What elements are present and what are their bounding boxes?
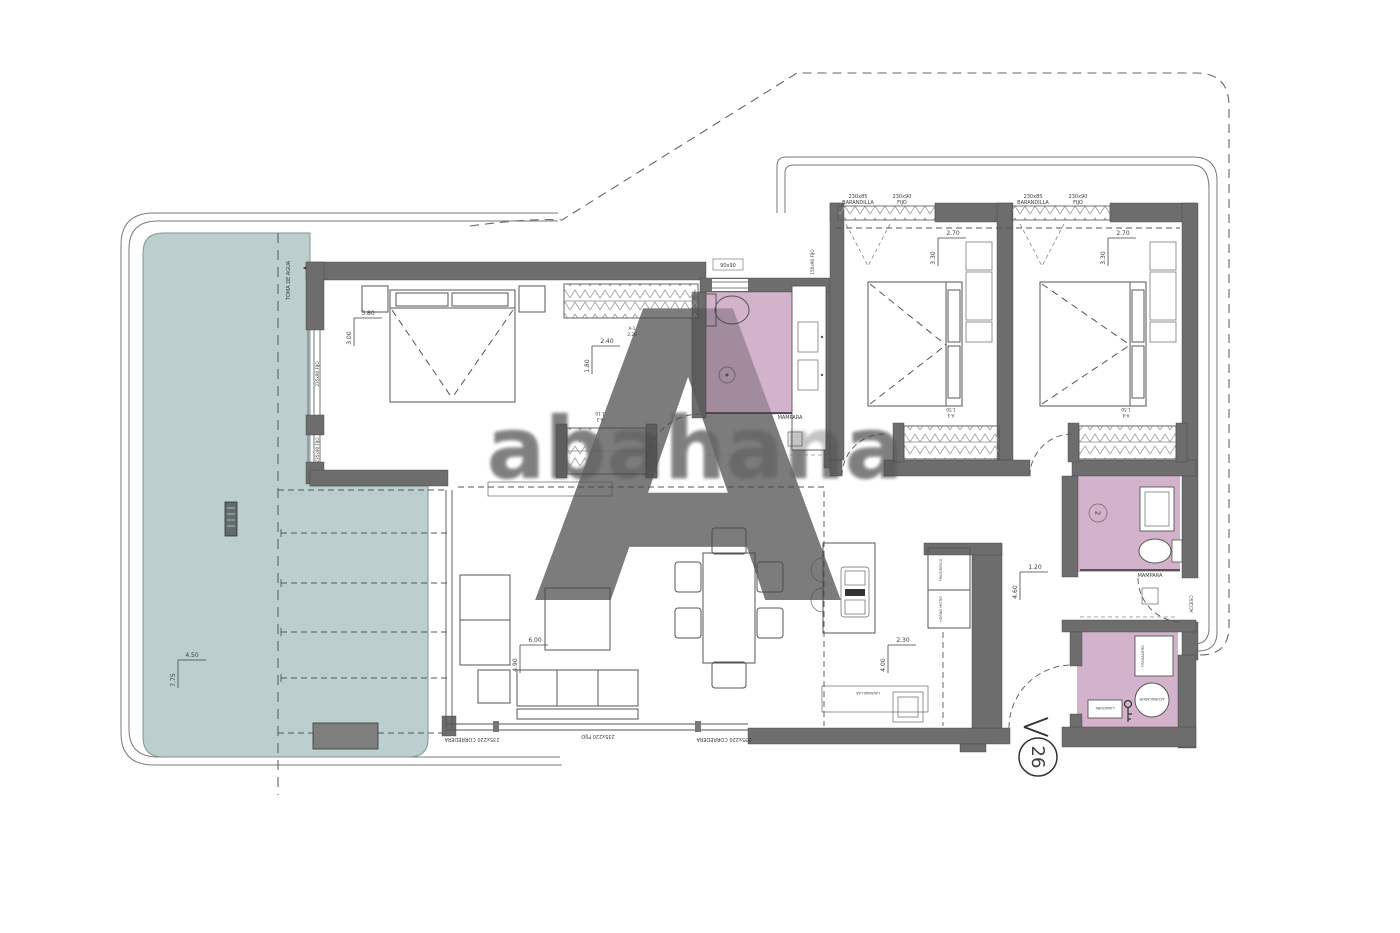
hob-burner-2: [845, 600, 865, 614]
closet-a4: [1079, 426, 1176, 459]
closet-a3-code: A-3: [947, 413, 954, 418]
bed3-window: [1012, 206, 1110, 220]
wall-master-left-2: [306, 415, 324, 435]
bed3-shelf-1: [1150, 242, 1176, 270]
glazing-center-label: 235x220 FIJO: [581, 733, 614, 739]
glazing-mullion-1: [493, 721, 499, 732]
hob-burner-1: [845, 571, 865, 585]
bed3-dim-w: 2.70: [1116, 230, 1130, 237]
hall-dim-l: 4.60: [1012, 585, 1019, 599]
bed2-window-swing: [846, 224, 890, 266]
sofa-pouf: [478, 670, 510, 703]
wall-glazing-corner: [442, 716, 456, 736]
wall-master-left-1: [306, 262, 324, 330]
floor-plan-canvas: A abahana TOMA DE AGUA 4.50 7.75: [0, 0, 1400, 933]
bed2-shelf-2: [966, 272, 992, 320]
nightstand-left: [362, 286, 388, 312]
bed3-fixed-label: FIJO: [1073, 200, 1083, 206]
closet-a4-len: 1.50: [1121, 407, 1131, 412]
laundry-boiler-label: ACUMULADOR: [1139, 697, 1165, 701]
living-glazing-left: [446, 490, 452, 728]
bed2-shelf-1: [966, 242, 992, 270]
glazing-mullion-2: [695, 721, 701, 732]
wall-hall-3: [1072, 460, 1196, 476]
bed3-shelf-3: [1150, 322, 1176, 342]
pool-step-block: [313, 723, 378, 749]
door-arc-laundry: [1009, 665, 1072, 728]
bed3-window-swing: [1020, 224, 1064, 266]
wall-kitchen-top: [924, 543, 1002, 555]
kitchen-unit2-label: HORNO MICRO: [939, 596, 943, 622]
master-dim-w: 3.80: [361, 310, 375, 317]
bed2-fixed-label: FIJO: [897, 200, 907, 206]
wall-laundry-left-1: [1070, 632, 1082, 666]
plot-number-marker: 26: [1019, 718, 1057, 776]
living-dim-d: 4.90: [512, 658, 519, 672]
bath2-screen-label: MAMPARA: [1138, 573, 1163, 579]
kitchen-tall-unit-2: [928, 590, 970, 628]
door-arc-entry: [1138, 578, 1182, 622]
kitchen-sink-inner: [898, 697, 918, 717]
laundry-washer-label: LAVADORA: [1095, 706, 1115, 710]
door-arc-bed3: [1030, 434, 1072, 476]
laundry-sink-label: FREGADERO: [1141, 645, 1145, 667]
bed2-dim-d: 3.30: [930, 251, 937, 265]
wall-kitchen-column: [972, 545, 1002, 728]
bed2-dim-w: 2.70: [946, 230, 960, 237]
closet-a3: [904, 426, 999, 459]
glazing-left-label: 235x220 CORREDERA: [444, 736, 499, 742]
wall-laundry-bottom: [1062, 727, 1196, 747]
toilet2-tank: [1172, 540, 1182, 562]
wall-living-bottom: [748, 728, 1010, 744]
closet-a3-len: 1.50: [946, 407, 956, 412]
entry-label: ACCESO: [1189, 595, 1194, 613]
water-inlet-label: TOMA DE AGUA: [286, 260, 292, 301]
wall-bed-divider: [997, 203, 1013, 460]
closet-a4-endwall-r: [1176, 423, 1187, 462]
bed2: [868, 242, 992, 406]
dim-kitchen: 2.30 4.00: [880, 637, 916, 673]
master-bed: [362, 286, 545, 402]
glazing-right-label: 235x220 CORREDERA: [696, 736, 751, 742]
kitchen-dim-w: 2.30: [896, 637, 910, 644]
bed3: [1040, 242, 1176, 406]
kitchen-sink-square: [893, 692, 923, 722]
bed3-dim-d: 3.30: [1100, 251, 1107, 265]
bed3-rail-label: BARANDILLA: [1017, 200, 1049, 206]
pool-dim-length: 7.75: [170, 673, 177, 687]
master-window2-label: 235x90 FIJO: [315, 437, 320, 463]
toilet2-bowl: [1139, 539, 1171, 563]
kitchen-unit1-label: FRIGORIFICO: [939, 558, 943, 581]
pool-equipment-box: [225, 502, 237, 536]
wall-hall-2: [884, 460, 1030, 476]
wall-master-bottom: [310, 470, 448, 486]
sofa-backrest: [517, 709, 638, 719]
wall-bottom-tab: [960, 744, 986, 752]
dim-bed3: 2.70 3.30: [1100, 230, 1136, 266]
hob-bar: [845, 589, 865, 596]
closet-a4-code: A-4: [1122, 413, 1129, 418]
hall-dim-w: 1.20: [1028, 564, 1042, 571]
master-window1-label: 235x90 FIJO: [315, 361, 320, 387]
kitchen-dim-d: 4.00: [880, 658, 887, 672]
kitchen-appliance-label: LAVAVAJILLAS: [855, 691, 880, 695]
dim-master: 3.80 3.00: [346, 310, 382, 346]
watermark-word-over: abahana: [487, 399, 903, 499]
watermark-over: A abahana: [487, 230, 903, 695]
wall-right-outer-upper: [1182, 203, 1198, 578]
pool-dim-width: 4.50: [185, 652, 199, 659]
bed2-window: [838, 206, 935, 220]
wall-bath2-left: [1062, 476, 1078, 577]
plot-arrow-icon: [1024, 718, 1048, 736]
dim-bed2: 2.70 3.30: [930, 230, 966, 266]
bed3-shelf-2: [1150, 272, 1176, 320]
floor-plan-drawing: A abahana TOMA DE AGUA 4.50 7.75: [0, 0, 1400, 933]
dim-hall: 1.20 4.60: [1012, 564, 1048, 600]
master-dim-d: 3.00: [346, 331, 353, 345]
living-glazing-bottom: [446, 724, 748, 730]
closet-a4-endwall-l: [1068, 423, 1079, 462]
bed2-rail-label: BARANDILLA: [842, 200, 874, 206]
plot-number-text: 26: [1027, 746, 1048, 769]
bed2-shelf-3: [966, 322, 992, 342]
pool-area: TOMA DE AGUA 4.50 7.75: [143, 233, 448, 795]
bath2-shower-number: 2: [1094, 511, 1102, 515]
